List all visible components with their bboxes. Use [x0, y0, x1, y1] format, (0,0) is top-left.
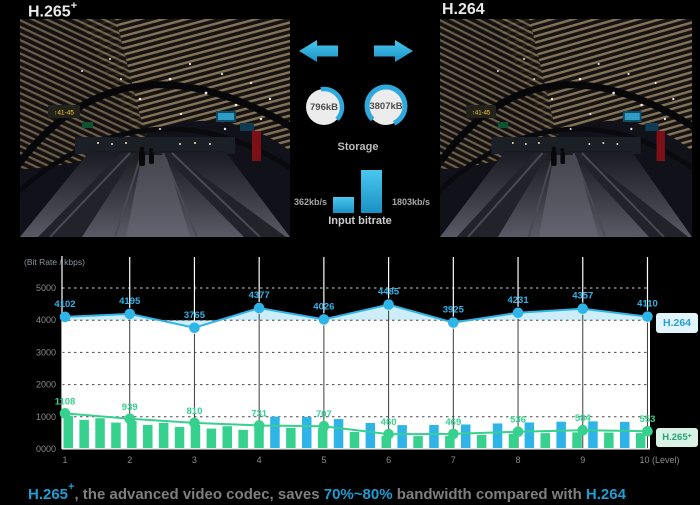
caption-bandwidth-saving: 70%~80% [324, 486, 393, 503]
svg-text:1: 1 [62, 455, 67, 465]
svg-text:4026: 4026 [313, 301, 334, 312]
legend-h265: H.265+ [656, 428, 698, 447]
svg-text:4195: 4195 [119, 296, 141, 307]
bitrate-bar-h265 [333, 197, 354, 213]
svg-text:4102: 4102 [54, 299, 75, 310]
svg-text:4: 4 [257, 455, 262, 465]
y-axis-title: (Bit Rate / kbps) [24, 257, 85, 267]
svg-text:3925: 3925 [443, 305, 465, 316]
svg-text:584: 584 [575, 413, 592, 424]
arrow-right-icon [374, 40, 413, 62]
svg-text:9: 9 [580, 455, 585, 465]
svg-text:939: 939 [122, 402, 138, 413]
svg-text:731: 731 [251, 408, 268, 419]
svg-text:1000: 1000 [36, 412, 56, 422]
storage-value-h264: 3807kB [363, 83, 409, 129]
caption-h264: H.264 [586, 486, 626, 503]
svg-text:6: 6 [386, 455, 391, 465]
x-axis-labels: 12345678910 (Level) [62, 455, 679, 465]
direction-arrows [295, 40, 440, 62]
svg-text:7: 7 [451, 455, 456, 465]
bitrate-chart: 1108939810731707460469536584553410241953… [0, 250, 700, 482]
y-axis-labels: 500040003000200010000000 [36, 283, 56, 454]
svg-text:0000: 0000 [36, 444, 56, 454]
h264-photo [440, 19, 692, 237]
svg-text:3: 3 [192, 455, 197, 465]
h265-photo [20, 19, 290, 237]
svg-text:810: 810 [187, 406, 203, 417]
legend-h264: H.264 [656, 313, 698, 333]
bitrate-bars [330, 169, 390, 215]
svg-text:4485: 4485 [378, 287, 400, 298]
storage-label: Storage [313, 141, 403, 153]
caption: H.265+, the advanced video codec, saves … [28, 484, 626, 503]
svg-text:4110: 4110 [637, 299, 658, 310]
svg-text:5000: 5000 [36, 283, 56, 293]
h264-title: H.264 [442, 1, 485, 19]
input-bitrate-label: Input bitrate [305, 215, 415, 227]
svg-text:4377: 4377 [249, 290, 270, 301]
svg-text:10 (Level): 10 (Level) [639, 455, 679, 465]
storage-value-h265: 796kB [302, 85, 346, 129]
svg-text:1108: 1108 [55, 396, 76, 407]
svg-text:5: 5 [321, 455, 326, 465]
caption-h265: H.265 [28, 486, 68, 503]
svg-text:4357: 4357 [572, 291, 593, 302]
arrow-left-icon [299, 40, 338, 62]
svg-text:4231: 4231 [507, 295, 529, 306]
svg-text:707: 707 [316, 409, 332, 420]
svg-text:3000: 3000 [36, 347, 56, 357]
svg-text:8: 8 [516, 455, 521, 465]
svg-text:2000: 2000 [36, 380, 56, 390]
svg-text:3765: 3765 [184, 310, 206, 321]
bitrate-bar-h264 [361, 170, 382, 213]
svg-text:4000: 4000 [36, 315, 56, 325]
svg-text:469: 469 [445, 417, 461, 428]
bitrate-value-h265: 362kb/s [277, 197, 327, 207]
bitrate-value-h264: 1803kb/s [392, 197, 447, 207]
svg-text:460: 460 [381, 417, 397, 428]
svg-text:553: 553 [640, 414, 656, 425]
svg-text:2: 2 [127, 455, 132, 465]
svg-text:536: 536 [510, 415, 526, 426]
comparison-panel: 796kB 3807kB Storage 362kb/s 1803kb/s In… [295, 0, 440, 245]
